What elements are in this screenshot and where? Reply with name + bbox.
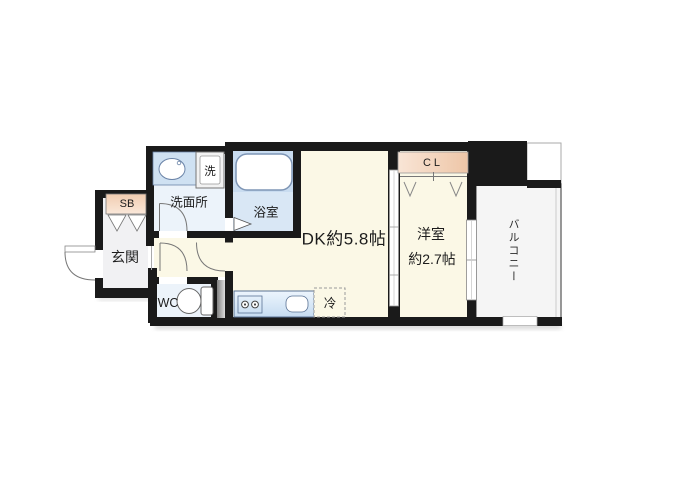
wall <box>146 231 159 238</box>
vanity-unit <box>153 152 196 185</box>
sliding-door <box>390 170 399 306</box>
stove-burner-dot <box>244 303 246 305</box>
closet-box <box>398 152 468 173</box>
kitchen-sink <box>286 296 308 312</box>
vanity-faucet <box>177 161 181 165</box>
stove-burner-dot <box>254 303 256 305</box>
wall <box>150 317 503 326</box>
washer-space <box>196 152 224 188</box>
floorplan-canvas: DK約5.8帖 洋室 約2.7帖 バルコニー 玄関 洗面所 浴室 WC CL S… <box>0 0 695 499</box>
balcony-drain-gap <box>503 317 537 326</box>
vanity-sink <box>159 159 185 180</box>
entry-door-panel <box>65 246 95 252</box>
washer-inner <box>200 156 220 184</box>
wall <box>187 231 301 238</box>
balcony-window <box>467 220 477 300</box>
wall <box>537 317 562 326</box>
wall <box>95 288 157 298</box>
wall <box>148 268 157 323</box>
wall <box>225 142 233 218</box>
toilet-tank <box>201 287 213 315</box>
pipe-space <box>217 280 225 318</box>
wall <box>293 142 301 238</box>
balcony-notch-outline <box>527 143 561 183</box>
wall <box>225 271 233 323</box>
wall <box>225 238 233 243</box>
floorplan-drawing <box>0 0 695 499</box>
balcony-floor <box>476 184 561 320</box>
wall <box>227 142 472 151</box>
bathtub <box>236 154 292 190</box>
shoe-box-cabinet <box>106 194 146 214</box>
kitchen-counter <box>234 291 314 317</box>
toilet <box>177 287 213 315</box>
wall <box>527 180 561 188</box>
toilet-bowl <box>177 289 201 314</box>
wall <box>148 277 159 284</box>
refrigerator-space <box>314 288 345 317</box>
wall-structure-block <box>468 141 527 186</box>
wall <box>95 190 103 250</box>
